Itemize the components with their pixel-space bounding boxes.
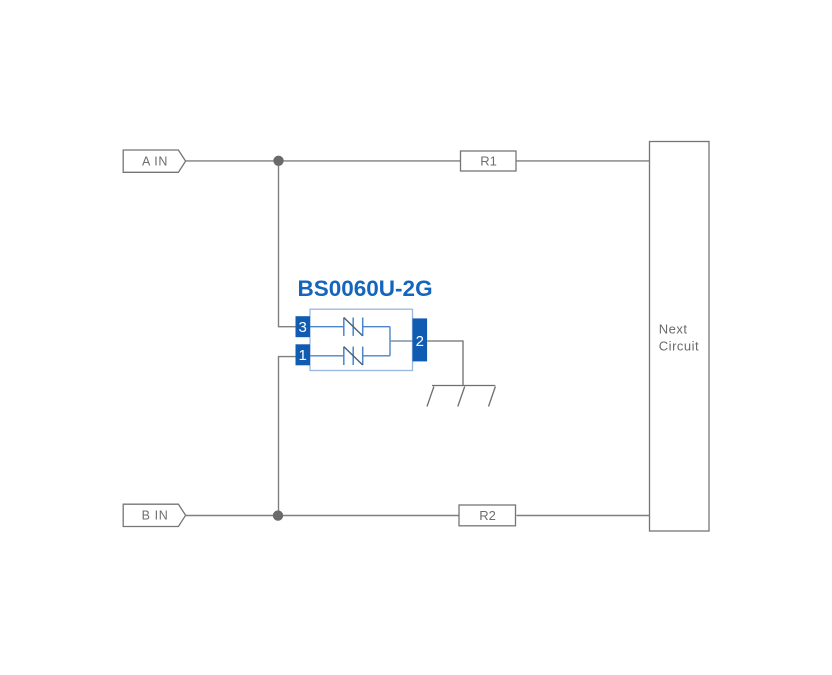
- svg-text:A IN: A IN: [142, 154, 168, 168]
- svg-text:B IN: B IN: [142, 509, 169, 523]
- svg-text:Next: Next: [659, 322, 688, 337]
- svg-text:1: 1: [299, 347, 307, 364]
- svg-text:Circuit: Circuit: [659, 338, 699, 353]
- svg-text:2: 2: [416, 333, 424, 350]
- svg-text:R1: R1: [480, 154, 497, 169]
- svg-text:3: 3: [299, 319, 307, 336]
- svg-text:BS0060U-2G: BS0060U-2G: [298, 276, 433, 301]
- svg-text:R2: R2: [479, 508, 496, 523]
